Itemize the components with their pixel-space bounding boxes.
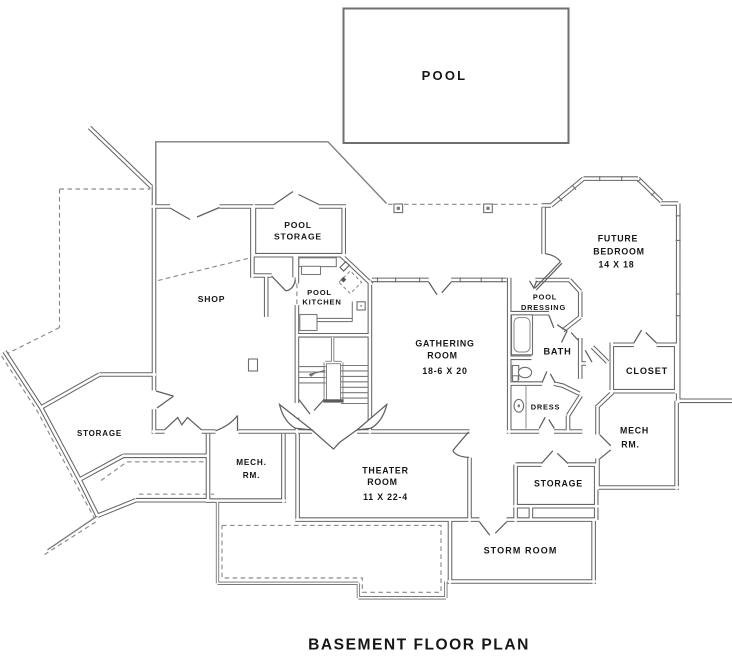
svg-text:BATH: BATH <box>543 347 571 357</box>
svg-text:BASEMENT FLOOR PLAN: BASEMENT FLOOR PLAN <box>308 637 530 654</box>
svg-text:RM.: RM. <box>621 440 640 450</box>
svg-text:ROOM: ROOM <box>367 477 398 487</box>
svg-text:18-6 X 20: 18-6 X 20 <box>422 366 467 376</box>
svg-text:CLOSET: CLOSET <box>626 366 668 376</box>
svg-text:11 X 22-4: 11 X 22-4 <box>363 492 408 502</box>
svg-text:POOL: POOL <box>422 68 468 83</box>
svg-text:DRESSING: DRESSING <box>521 303 566 312</box>
svg-text:RM.: RM. <box>243 471 260 480</box>
svg-text:SHOP: SHOP <box>198 294 226 304</box>
svg-text:MECH.: MECH. <box>236 458 266 467</box>
svg-text:STORAGE: STORAGE <box>77 429 122 438</box>
svg-text:ROOM: ROOM <box>427 351 458 361</box>
svg-text:STORAGE: STORAGE <box>534 479 583 489</box>
svg-text:STORM ROOM: STORM ROOM <box>484 546 558 556</box>
svg-text:POOL: POOL <box>284 220 312 230</box>
svg-text:MECH: MECH <box>620 426 649 436</box>
svg-text:STORAGE: STORAGE <box>274 232 322 242</box>
svg-text:DRESS: DRESS <box>531 403 560 412</box>
svg-text:14 X 18: 14 X 18 <box>599 260 635 270</box>
svg-text:POOL: POOL <box>533 293 557 302</box>
svg-text:THEATER: THEATER <box>362 466 409 476</box>
svg-text:FUTURE: FUTURE <box>598 234 638 244</box>
svg-text:POOL: POOL <box>307 288 332 297</box>
svg-text:KITCHEN: KITCHEN <box>302 298 341 307</box>
svg-text:BEDROOM: BEDROOM <box>593 247 645 257</box>
svg-text:GATHERING: GATHERING <box>415 339 474 349</box>
